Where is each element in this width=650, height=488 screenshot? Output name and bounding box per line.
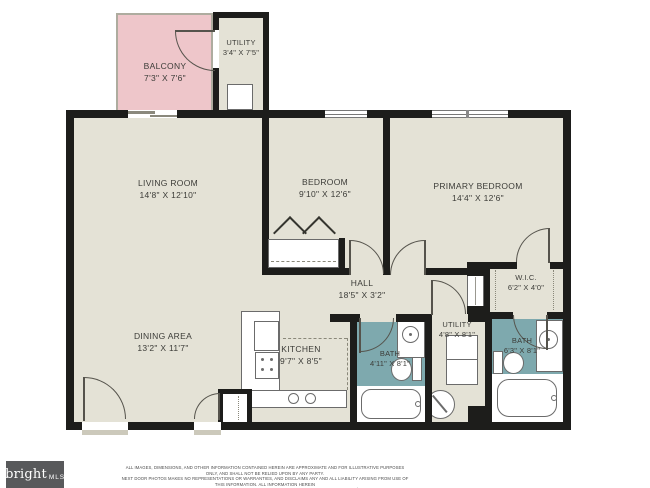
pantry-interior: [223, 394, 247, 422]
room-label-wic: W.I.C. 6'2" X 4'0": [508, 273, 544, 293]
room-dims: 3'4" X 7'5": [223, 48, 259, 58]
wall-stub: [468, 406, 486, 422]
room-dims: 6'3" X 8'1": [504, 346, 540, 356]
bedroom-window: [325, 110, 367, 118]
wall-outer-left: [66, 110, 74, 430]
washer-dryer-divider: [446, 359, 478, 360]
stove-burner: [270, 368, 273, 371]
wall-primary-south: [550, 262, 571, 269]
room-dims: 9'7" X 8'5": [280, 355, 322, 367]
logo-wordmark: bright: [5, 467, 47, 482]
room-label-utility-top: UTILITY 3'4" X 7'5": [223, 38, 259, 58]
sliding-door-panel: [150, 115, 177, 118]
toilet-tank: [493, 351, 503, 374]
room-name: PRIMARY BEDROOM: [433, 180, 522, 192]
wic-rod-line: [495, 270, 496, 310]
window-mullion: [466, 110, 469, 118]
floor-plan: BALCONY 7'3" X 7'6" UTILITY 3'4" X 7'5" …: [0, 0, 650, 488]
disclaimer-line: ALL IMAGES, DIMENSIONS, AND OTHER INFORM…: [120, 465, 410, 476]
wall-outer-right: [563, 110, 571, 430]
room-dims: 13'2" X 11'7": [134, 342, 192, 354]
refrigerator-fixture: [254, 321, 279, 351]
bathtub-fixture: [361, 389, 421, 419]
room-dims: 9'10" X 12'6": [299, 188, 351, 200]
disclaimer-text: ALL IMAGES, DIMENSIONS, AND OTHER INFORM…: [120, 465, 410, 488]
room-name: UTILITY: [223, 38, 259, 48]
wall-hall-top: [425, 268, 467, 275]
wall-outer-top: [367, 110, 432, 118]
pantry-wall: [247, 389, 252, 422]
wall-bedroom-primary: [383, 118, 390, 275]
room-label-primary-bedroom: PRIMARY BEDROOM 14'4" X 12'6": [433, 180, 522, 204]
room-label-balcony: BALCONY 7'3" X 7'6": [144, 60, 187, 84]
room-dims: 4'11" X 8'1": [370, 359, 410, 369]
entry-threshold: [194, 430, 221, 435]
room-dims: 14'4" X 12'6": [433, 192, 522, 204]
room-dims: 4'8" X 8'1": [439, 330, 475, 340]
stove-fixture: [255, 352, 279, 379]
room-label-bath-hall: BATH 4'11" X 8'1": [370, 349, 410, 369]
room-label-bedroom: BEDROOM 9'10" X 12'6": [299, 176, 351, 200]
logo-suffix: MLS: [49, 474, 65, 481]
room-label-dining-area: DINING AREA 13'2" X 11'7": [134, 330, 192, 354]
utility-top-appliance: [227, 84, 253, 110]
stove-burner: [261, 368, 264, 371]
room-name: DINING AREA: [134, 330, 192, 342]
wall-bath-utility: [425, 314, 432, 422]
entry-threshold: [82, 430, 128, 435]
tub-faucet: [415, 401, 421, 407]
wic-rod-line: [553, 270, 554, 310]
room-name: UTILITY: [439, 320, 475, 330]
kitchen-cabinet-line: [347, 338, 348, 390]
wall-outer-bottom: [221, 422, 571, 430]
wall-outer-bottom: [128, 422, 194, 430]
room-name: W.I.C.: [508, 273, 544, 283]
room-label-hall: HALL 18'5" X 3'2": [339, 277, 386, 301]
disclaimer-line: NEXT DOOR PHOTOS MAKES NO REPRESENTATION…: [120, 476, 410, 487]
room-label-utility-lower: UTILITY 4'8" X 8'1": [439, 320, 475, 340]
wall-wic-bottom: [547, 312, 571, 319]
stove-burner: [270, 358, 273, 361]
bedroom-closet-rod: [271, 261, 336, 262]
room-dims: 6'2" X 4'0": [508, 283, 544, 293]
room-dims: 14'8" X 12'10": [138, 189, 198, 201]
primary-bedroom-window: [432, 110, 508, 118]
sliding-door-panel: [128, 111, 155, 114]
room-dims: 18'5" X 3'2": [339, 289, 386, 301]
bedroom-closet-shelf: [268, 239, 339, 268]
wall-outer-top: [66, 110, 128, 118]
room-name: BATH: [504, 336, 540, 346]
room-label-living-room: LIVING ROOM 14'8" X 12'10": [138, 177, 198, 201]
water-heater-blade: [432, 395, 447, 413]
room-name: BALCONY: [144, 60, 187, 72]
bathtub-fixture: [497, 379, 557, 417]
brightmls-logo: bright MLS: [6, 461, 64, 488]
room-label-kitchen: KITCHEN 9'7" X 8'5": [280, 343, 322, 367]
wall-living-bedroom: [262, 118, 269, 239]
kitchen-sink-basin: [288, 393, 299, 404]
wall-outer-top: [508, 110, 571, 118]
linen-closet-cap: [467, 306, 484, 314]
stove-burner: [261, 358, 264, 361]
tub-faucet: [551, 395, 557, 401]
room-dims: 7'3" X 7'6": [144, 72, 187, 84]
room-name: KITCHEN: [280, 343, 322, 355]
toilet-tank: [412, 357, 422, 381]
room-name: BEDROOM: [299, 176, 351, 188]
wall-utility-bath: [485, 314, 492, 422]
wall-outer-top: [177, 110, 325, 118]
pantry-shelf-line: [238, 396, 239, 420]
wall-kitchen-bath: [350, 314, 357, 422]
sink-drain: [409, 333, 412, 336]
linen-closet-door-line: [475, 277, 476, 305]
room-name: BATH: [370, 349, 410, 359]
kitchen-cabinet-line: [283, 338, 347, 339]
room-name: LIVING ROOM: [138, 177, 198, 189]
kitchen-sink-basin: [305, 393, 316, 404]
room-name: HALL: [339, 277, 386, 289]
room-label-bath-primary: BATH 6'3" X 8'1": [504, 336, 540, 356]
wall-closet-bottom: [262, 268, 350, 275]
wall-outer-bottom: [66, 422, 82, 430]
wall-wic-left: [484, 262, 490, 318]
